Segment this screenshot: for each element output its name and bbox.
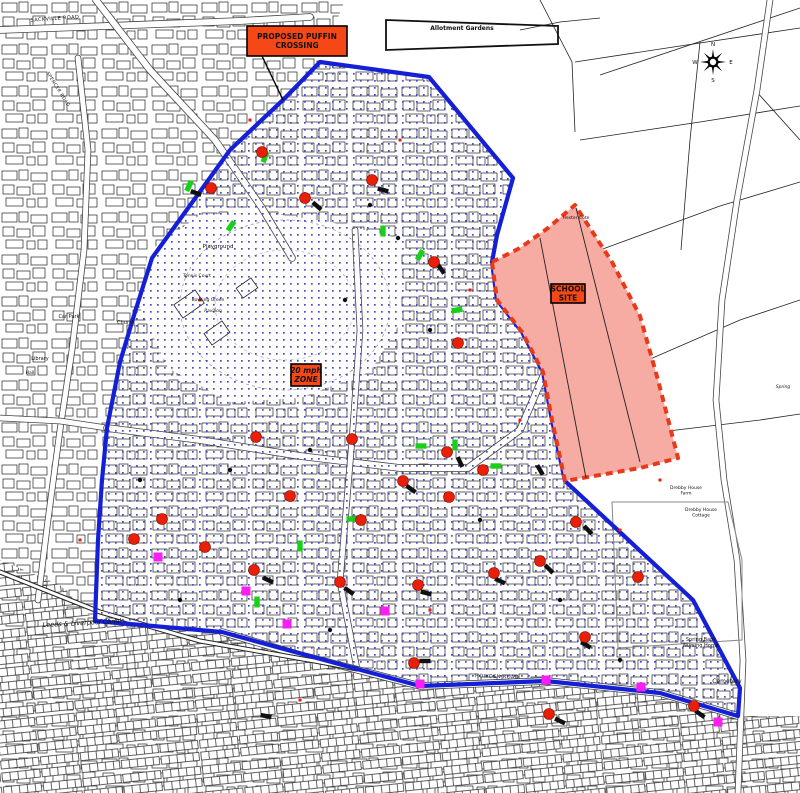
map-label-playground: Playground [203,244,234,250]
marker-green-bar [452,440,457,451]
marker-black-dot [328,628,332,632]
marker-green-bar [254,597,259,608]
marker-black-dot [618,658,622,662]
compass-letter: N [711,42,715,48]
school-site-label: SITE [559,294,577,303]
marker-black-dot [558,598,562,602]
map-label-bowling-green: Bowling Green [192,297,225,303]
twenty-mph-zone-label: 20 mph [290,366,322,375]
marker-green-bar [297,541,302,552]
marker-red-circle [335,577,346,588]
marker-red-tick [619,529,622,532]
marker-black-dot [178,598,182,602]
proposed-puffin-crossing-label: PROPOSED PUFFIN [257,32,337,41]
marker-red-circle [300,193,311,204]
marker-red-circle [356,515,367,526]
map-label-cemetery: Cemetery [712,678,742,685]
proposed-puffin-crossing-label: CROSSING [275,41,318,50]
marker-red-circle [251,432,262,443]
marker-red-circle [157,514,168,525]
marker-magenta-square [637,683,646,692]
marker-magenta-square [283,620,292,629]
marker-green-bar [491,463,502,468]
marker-red-circle [478,465,489,476]
marker-green-bar [416,443,427,448]
map-label-car-park: Car Park [58,314,79,320]
marker-black-dot [308,448,312,452]
marker-red-tick [79,539,82,542]
marker-red-circle [347,434,358,445]
map-label-hall: Hall [26,370,35,376]
twenty-mph-zone-label: ZONE [293,375,318,384]
marker-red-circle [571,517,582,528]
compass-letter: S [711,78,715,84]
marker-black-dot [478,518,482,522]
marker-red-circle [489,568,500,579]
marker-red-tick [429,609,432,612]
marker-red-circle [413,580,424,591]
marker-red-tick [249,119,252,122]
marker-red-tick [659,479,662,482]
map-label-spring-bank-nursing-home: Spring BankNursing Home [683,637,719,649]
marker-red-circle [689,701,700,712]
marker-red-tick [519,419,522,422]
marker-black-dot [138,478,142,482]
marker-red-circle [285,491,296,502]
marker-magenta-square [242,587,251,596]
marker-black-dot [428,328,432,332]
marker-red-circle [633,572,644,583]
marker-magenta-square [714,718,723,727]
compass-hub-center [710,59,716,65]
marker-black-dot [228,468,232,472]
marker-red-circle [200,542,211,553]
marker-red-circle [249,565,260,576]
marker-red-tick [299,699,302,702]
map-label-church: Church [117,320,135,326]
map-label-library: Library [31,356,49,362]
marker-black-bar [420,659,431,663]
marker-black-dot [368,203,372,207]
marker-black-dot [396,236,400,240]
marker-red-circle [580,632,591,643]
planning-map: PROPOSED PUFFINCROSSINGSCHOOLSITE20 mphZ… [0,0,800,793]
marker-magenta-square [154,553,163,562]
marker-red-circle [206,183,217,194]
map-label-allotment-gardens: Allotment Gardens [430,25,494,32]
marker-green-bar [380,226,385,237]
compass-letter: E [729,60,733,66]
marker-red-tick [469,289,472,292]
marker-red-circle [398,476,409,487]
marker-red-circle [544,709,555,720]
marker-black-dot [343,298,347,302]
marker-red-tick [399,139,402,142]
marker-red-circle [444,492,455,503]
marker-red-circle [453,338,464,349]
map-label-tennis-court: Tennis Court [182,273,211,279]
marker-magenta-square [381,607,390,616]
marker-magenta-square [542,676,551,685]
map-viewport: PROPOSED PUFFINCROSSINGSCHOOLSITE20 mphZ… [0,0,800,793]
marker-red-circle [367,175,378,186]
marker-red-circle [409,658,420,669]
marker-red-circle [257,147,268,158]
map-label-pavilion: Pavilion [204,308,222,314]
school-site-label: SCHOOL [551,285,586,294]
marker-red-circle [535,556,546,567]
compass-letter: W [692,60,698,66]
map-label-spring: Spring [776,384,791,390]
marker-red-circle [429,257,440,268]
marker-red-circle [442,447,453,458]
marker-magenta-square [416,680,425,689]
marker-red-circle [129,534,140,545]
map-label-hester-cote: Hester Cote [563,215,590,221]
